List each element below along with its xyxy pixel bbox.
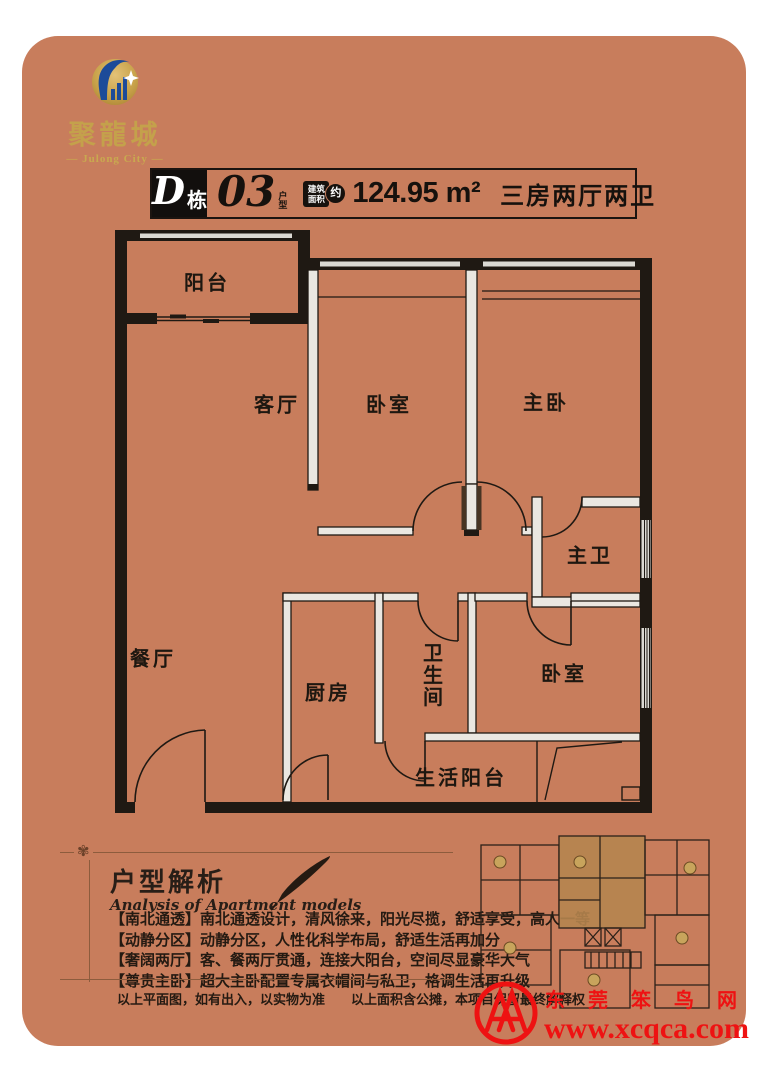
watermark-logo-icon [470,977,542,1049]
area-value: 124.95 m² [352,177,480,210]
unit-header-bar: D 栋 03 户 型 建筑 面积 约 124.95 m² 三房两厅两卫 [150,168,637,219]
poster-page: 聚龍城 — Julong City — D 栋 03 户 型 建筑 面积 约 [0,0,768,1066]
watermark-site-name: 东莞笨鸟网 [545,984,760,1013]
watermark-site-url: www.xcqca.com [544,1012,749,1046]
room-label-master-bath: 主卫 [567,540,613,569]
disclaimer-left: 以上平面图，如有出入，以实物为准 [117,989,325,1008]
section-bottom-rule [60,979,453,980]
feather-icon [270,854,334,912]
building-suffix: 栋 [187,184,207,213]
room-label-bedroom-1: 卧室 [366,389,412,418]
area-badge: 建筑 面积 约 [303,181,346,207]
brand-name-en: — Julong City — [50,153,180,165]
analysis-title: 户型解析 [110,862,226,899]
section-top-rule [60,852,453,853]
floorplan-drawing [115,230,652,813]
room-label-balcony: 阳台 [184,267,230,296]
area-badge-circle: 约 [325,183,346,204]
brand-logo: 聚龍城 — Julong City — [50,58,180,165]
room-label-dining: 餐厅 [130,643,176,672]
unit-number: 03 [217,171,275,213]
room-label-bathroom: 卫生间 [422,643,444,709]
brand-logo-icon [91,58,139,106]
brand-name-cn: 聚龍城 [50,113,180,152]
unit-number-suffix: 户 型 [278,192,287,210]
building-badge: D 栋 [152,170,207,217]
room-label-master: 主卧 [523,387,569,416]
building-letter: D [152,172,185,210]
poster-card: 聚龍城 — Julong City — D 栋 03 户 型 建筑 面积 约 [22,36,746,1046]
room-label-bedroom-2: 卧室 [541,658,587,687]
room-label-kitchen: 厨房 [305,677,351,706]
layout-description: 三房两厅两卫 [500,176,656,211]
flower-ornament-icon: ✾ [74,844,93,860]
room-label-living: 客厅 [254,389,300,418]
room-label-service-balcony: 生活阳台 [415,762,507,791]
section-left-rule [89,852,90,982]
